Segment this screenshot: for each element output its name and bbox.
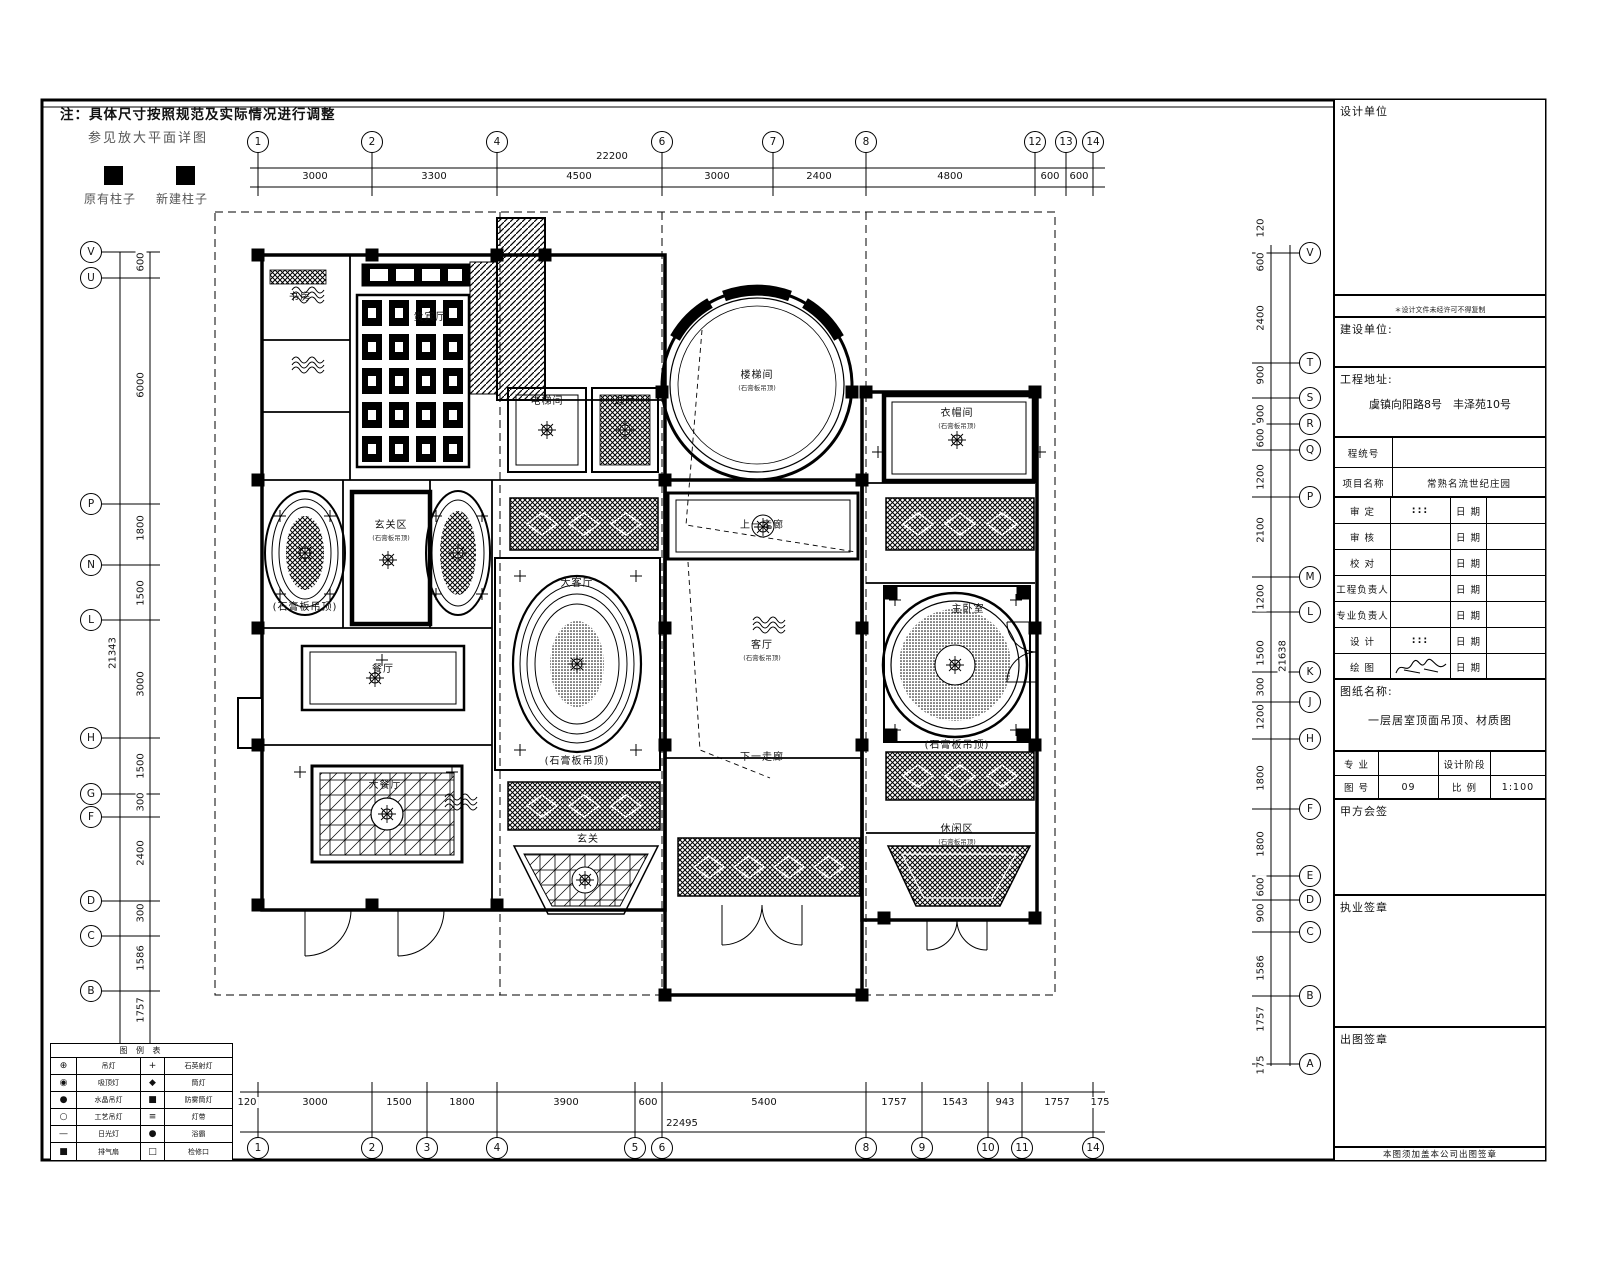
sheet-note-line1: 注：具体尺寸按照规范及实际情况进行调整	[60, 103, 336, 123]
legend-symbol: ■	[51, 1143, 77, 1160]
sheet-name-box: 图纸名称: 一层居室顶面吊顶、材质图	[1335, 680, 1545, 752]
major-label: 专 业	[1335, 752, 1379, 775]
grid-bubble: L	[1299, 601, 1321, 623]
legend-row: ○工艺吊灯≡灯带	[51, 1109, 232, 1126]
grid-bubble: 14	[1082, 1137, 1104, 1159]
dimension-label: 1800	[1256, 763, 1267, 792]
sign-value	[1391, 576, 1451, 601]
grid-bubble: A	[1299, 1053, 1321, 1075]
legend-label: 筒灯	[165, 1075, 232, 1091]
overall-dimension: 21343	[108, 635, 119, 671]
sign-role-label: 工程负责人	[1335, 576, 1391, 601]
date-value	[1487, 550, 1545, 575]
room-label: 主卧室	[952, 600, 985, 615]
grid-bubble: V	[80, 241, 102, 263]
grid-bubble: R	[1299, 413, 1321, 435]
legend-label: 排气扇	[77, 1143, 141, 1160]
date-label: 日 期	[1451, 550, 1487, 575]
room-label: 电梯间	[531, 392, 564, 407]
dimension-label: 300	[136, 790, 147, 813]
dimension-label: 600	[1038, 171, 1061, 182]
dimension-label: 300	[1256, 675, 1267, 698]
legend-symbol: +	[141, 1058, 165, 1074]
scale-value: 1:100	[1491, 776, 1545, 798]
address-value: 虞镇向阳路8号 丰泽苑10号	[1335, 396, 1545, 412]
sign-value	[1391, 550, 1451, 575]
signature-row: 审 核日 期	[1335, 524, 1545, 550]
legend-symbol: ●	[51, 1092, 77, 1108]
grid-bubble: F	[1299, 798, 1321, 820]
client-sign-box: 甲方会签	[1335, 800, 1545, 896]
sign-role-label: 审 定	[1335, 498, 1391, 523]
axis-ticks	[100, 150, 1302, 1140]
legend-label: 吊灯	[77, 1058, 141, 1074]
dimension-label: 600	[136, 250, 147, 273]
dimension-label: 1200	[1256, 462, 1267, 491]
dimension-label: 3300	[419, 171, 448, 182]
construction-unit-label: 建设单位:	[1335, 318, 1545, 340]
legend-table: 图 例 表 ⊕吊灯+石英射灯◉吸顶灯◆筒灯●水晶吊灯■防雾筒灯○工艺吊灯≡灯带—…	[50, 1043, 233, 1161]
legend-label: 检修口	[165, 1143, 232, 1160]
room-label: 楼梯间(石膏板吊顶)	[738, 366, 776, 392]
dimension-label: 900	[1256, 402, 1267, 425]
date-value	[1487, 498, 1545, 523]
grid-bubble: 1	[247, 131, 269, 153]
grid-bubble: 3	[416, 1137, 438, 1159]
ceiling-decor	[265, 264, 1034, 914]
grid-bubble: 13	[1055, 131, 1077, 153]
dimension-label: 600	[1256, 250, 1267, 273]
grid-bubble: D	[1299, 889, 1321, 911]
dimension-label: 2100	[1256, 515, 1267, 544]
legend-symbol: ⊕	[51, 1058, 77, 1074]
date-value	[1487, 602, 1545, 627]
legend-label: 吸顶灯	[77, 1075, 141, 1091]
room-label: 书房	[289, 288, 311, 303]
grid-bubble: 5	[624, 1137, 646, 1159]
sign-value: :::	[1391, 628, 1451, 653]
grid-bubble: E	[1299, 865, 1321, 887]
grid-bubble: 12	[1024, 131, 1046, 153]
grid-bubble: T	[1299, 352, 1321, 374]
room-label: (石膏板吊顶)	[545, 752, 610, 767]
dimension-label: 600	[636, 1097, 659, 1108]
grid-bubble: V	[1299, 242, 1321, 264]
room-label: 客厅(石膏板吊顶)	[743, 636, 781, 662]
legend-symbol: ○	[51, 1109, 77, 1125]
dimension-label: 1800	[136, 513, 147, 542]
room-label: 过厅	[614, 392, 636, 407]
footer-note: 本图须加盖本公司出图签章	[1335, 1148, 1545, 1162]
overall-dimension: 22200	[594, 151, 630, 162]
dimension-label: 300	[136, 901, 147, 924]
signature-table: 审 定:::日 期审 核日 期校 对日 期工程负责人日 期专业负责人日 期设 计…	[1335, 498, 1545, 680]
dimension-label: 1586	[136, 943, 147, 972]
sign-role-label: 校 对	[1335, 550, 1391, 575]
dimension-label: 1586	[1256, 953, 1267, 982]
dimension-label: 2400	[136, 838, 147, 867]
sheet-no: 09	[1379, 776, 1439, 798]
grid-bubble: B	[1299, 985, 1321, 1007]
grid-bubble: B	[80, 980, 102, 1002]
dimension-label: 600	[1256, 426, 1267, 449]
design-unit-box: 设计单位	[1335, 100, 1545, 296]
overall-dimension: 21638	[1278, 638, 1289, 674]
dimension-label: 900	[1256, 901, 1267, 924]
legend-label: 防雾筒灯	[165, 1092, 232, 1108]
room-label: 餐厅	[372, 660, 394, 675]
signature-row: 工程负责人日 期	[1335, 576, 1545, 602]
address-label: 工程地址:	[1335, 368, 1545, 390]
phase-value	[1491, 752, 1545, 775]
issue-seal-box: 出图签章	[1335, 1028, 1545, 1148]
room-label: 衣帽间(石膏板吊顶)	[938, 404, 976, 430]
sheetno-scale-row: 图 号 09 比 例 1:100	[1335, 776, 1545, 800]
dimension-label: 175	[1088, 1097, 1111, 1108]
dimension-label: 600	[1256, 875, 1267, 898]
legend-label: 日光灯	[77, 1126, 141, 1142]
dimension-label: 1500	[136, 578, 147, 607]
legend-label: 浴霸	[165, 1126, 232, 1142]
dimension-label: 1800	[447, 1097, 476, 1108]
date-label: 日 期	[1451, 524, 1487, 549]
dimension-label: 1757	[879, 1097, 908, 1108]
legend-symbol: ●	[141, 1126, 165, 1142]
dimension-label: 120	[235, 1097, 258, 1108]
cad-sheet: { "note": { "line1": "注：具体尺寸按照规范及实际情况进行调…	[0, 0, 1600, 1280]
new-column-swatch	[176, 166, 195, 185]
dimension-label: 2400	[804, 171, 833, 182]
dimension-label: 4500	[564, 171, 593, 182]
sheet-note-line2: 参见放大平面详图	[88, 127, 208, 146]
legend-row: —日光灯●浴霸	[51, 1126, 232, 1143]
room-label: 玄关	[577, 830, 599, 845]
legend-title: 图 例 表	[51, 1044, 232, 1058]
dimension-label: 6000	[136, 370, 147, 399]
grid-bubble: N	[80, 554, 102, 576]
sign-value	[1391, 654, 1451, 680]
dimension-label: 943	[993, 1097, 1016, 1108]
grid-bubble: M	[1299, 566, 1321, 588]
date-label: 日 期	[1451, 654, 1487, 680]
room-label: (石膏板吊顶)	[273, 598, 338, 613]
legend-label: 石英射灯	[165, 1058, 232, 1074]
grid-bubble: S	[1299, 387, 1321, 409]
dimension-label: 3000	[136, 669, 147, 698]
grid-bubble: 11	[1011, 1137, 1033, 1159]
construction-unit-box: 建设单位:	[1335, 318, 1545, 368]
grid-bubble: C	[80, 925, 102, 947]
room-label: (石膏板吊顶)	[925, 736, 990, 751]
grid-bubble: 1	[247, 1137, 269, 1159]
grid-bubble: 8	[855, 131, 877, 153]
grid-bubble: 4	[486, 1137, 508, 1159]
sign-role-label: 绘 图	[1335, 654, 1391, 680]
dimension-label: 1200	[1256, 582, 1267, 611]
grid-bubble: 10	[977, 1137, 999, 1159]
grid-bubble: P	[80, 493, 102, 515]
room-label: 大餐厅	[369, 776, 402, 791]
title-block: 设计单位 ＊设计文件未经许可不得复制 建设单位: 工程地址: 虞镇向阳路8号 丰…	[1333, 100, 1545, 1160]
grid-bubble: F	[80, 806, 102, 828]
dimension-label: 1757	[136, 995, 147, 1024]
date-value	[1487, 654, 1545, 680]
dimension-label: 5400	[749, 1097, 778, 1108]
legend-symbol: —	[51, 1126, 77, 1142]
dimension-label: 120	[1256, 216, 1267, 239]
address-box: 工程地址: 虞镇向阳路8号 丰泽苑10号	[1335, 368, 1545, 438]
license-seal-box: 执业签章	[1335, 896, 1545, 1028]
signature-row: 专业负责人日 期	[1335, 602, 1545, 628]
info-label: 程统号	[1335, 438, 1393, 467]
room-label: 大客厅	[561, 574, 594, 589]
dimension-label: 1500	[136, 751, 147, 780]
grid-bubble: H	[1299, 728, 1321, 750]
signature-row: 校 对日 期	[1335, 550, 1545, 576]
signature-scribble	[1394, 657, 1448, 677]
grid-bubble: K	[1299, 661, 1321, 683]
major-value	[1379, 752, 1439, 775]
dimension-label: 175	[1256, 1053, 1267, 1076]
dimension-label: 3000	[702, 171, 731, 182]
sheet-name-label: 图纸名称:	[1335, 680, 1545, 702]
grid-bubble: L	[80, 609, 102, 631]
grid-bubble: 6	[651, 131, 673, 153]
project-info-table: 程统号项目名称常熟名流世纪庄园	[1335, 438, 1545, 498]
legend-symbol: ■	[141, 1092, 165, 1108]
overall-dimension: 22495	[664, 1118, 700, 1129]
design-unit-label: 设计单位	[1335, 100, 1545, 122]
grid-bubble: G	[80, 783, 102, 805]
copyright-strip: ＊设计文件未经许可不得复制	[1335, 296, 1545, 318]
sheet-no-label: 图 号	[1335, 776, 1379, 798]
sheet-name: 一层居室顶面吊顶、材质图	[1335, 712, 1545, 728]
date-label: 日 期	[1451, 628, 1487, 653]
signature-row: 设 计:::日 期	[1335, 628, 1545, 654]
info-value: 常熟名流世纪庄园	[1393, 468, 1545, 498]
info-label: 项目名称	[1335, 468, 1393, 498]
date-label: 日 期	[1451, 576, 1487, 601]
grid-bubble: 2	[361, 131, 383, 153]
issue-seal-label: 出图签章	[1335, 1028, 1545, 1050]
info-row: 项目名称常熟名流世纪庄园	[1335, 468, 1545, 498]
dimension-label: 3900	[551, 1097, 580, 1108]
signature-row: 审 定:::日 期	[1335, 498, 1545, 524]
legend-symbol: □	[141, 1143, 165, 1160]
legend-label: 水晶吊灯	[77, 1092, 141, 1108]
info-value	[1393, 438, 1545, 467]
client-sign-label: 甲方会签	[1335, 800, 1545, 822]
room-label: 玄关区(石膏板吊顶)	[372, 516, 410, 542]
legend-label: 工艺吊灯	[77, 1109, 141, 1125]
legend-row: ●水晶吊灯■防雾筒灯	[51, 1092, 232, 1109]
date-value	[1487, 576, 1545, 601]
sign-value	[1391, 602, 1451, 627]
dimension-label: 1800	[1256, 829, 1267, 858]
dimension-label: 1500	[384, 1097, 413, 1108]
grid-bubble: 14	[1082, 131, 1104, 153]
copyright-note: ＊设计文件未经许可不得复制	[1395, 306, 1486, 314]
sign-role-label: 审 核	[1335, 524, 1391, 549]
grid-bubble: U	[80, 267, 102, 289]
dimension-label: 1200	[1256, 702, 1267, 731]
dimension-label: 900	[1256, 363, 1267, 386]
grid-bubble: 2	[361, 1137, 383, 1159]
dimension-label: 1757	[1042, 1097, 1071, 1108]
grid-bubble: 6	[651, 1137, 673, 1159]
phase-label: 设计阶段	[1439, 752, 1491, 775]
info-row: 程统号	[1335, 438, 1545, 468]
grid-bubble: J	[1299, 691, 1321, 713]
grid-bubble: Q	[1299, 439, 1321, 461]
legend-row: ⊕吊灯+石英射灯	[51, 1058, 232, 1075]
grid-bubble: C	[1299, 921, 1321, 943]
grid-bubble: 9	[911, 1137, 933, 1159]
dimension-label: 1543	[940, 1097, 969, 1108]
grid-bubble: 4	[486, 131, 508, 153]
sign-role-label: 专业负责人	[1335, 602, 1391, 627]
date-label: 日 期	[1451, 498, 1487, 523]
grid-bubble: 8	[855, 1137, 877, 1159]
dimension-label: 3000	[300, 1097, 329, 1108]
date-label: 日 期	[1451, 602, 1487, 627]
room-label: 贵宾厅	[414, 308, 447, 323]
sign-value: :::	[1391, 498, 1451, 523]
scale-label: 比 例	[1439, 776, 1491, 798]
dimension-label: 1500	[1256, 638, 1267, 667]
existing-column-swatch	[104, 166, 123, 185]
major-phase-row: 专 业 设计阶段	[1335, 752, 1545, 776]
dimension-label: 1757	[1256, 1004, 1267, 1033]
legend-row: ◉吸顶灯◆筒灯	[51, 1075, 232, 1092]
dimension-label: 3000	[300, 171, 329, 182]
legend-symbol: ◉	[51, 1075, 77, 1091]
room-label: 下一走廊	[740, 748, 784, 763]
date-value	[1487, 628, 1545, 653]
dimension-label: 2400	[1256, 303, 1267, 332]
dimension-label: 600	[1067, 171, 1090, 182]
legend-symbol: ≡	[141, 1109, 165, 1125]
grid-bubble: D	[80, 890, 102, 912]
sign-value	[1391, 524, 1451, 549]
signature-row: 绘 图日 期	[1335, 654, 1545, 680]
dimension-label: 4800	[935, 171, 964, 182]
room-label: 上一走廊	[740, 516, 784, 531]
grid-bubble: P	[1299, 486, 1321, 508]
sign-role-label: 设 计	[1335, 628, 1391, 653]
room-label: 休闲区(石膏板吊顶)	[938, 820, 976, 846]
new-column-label: 新建柱子	[156, 190, 208, 207]
license-seal-label: 执业签章	[1335, 896, 1545, 918]
legend-row: ■排气扇□检修口	[51, 1143, 232, 1160]
grid-bubble: H	[80, 727, 102, 749]
date-value	[1487, 524, 1545, 549]
existing-column-label: 原有柱子	[84, 190, 136, 207]
legend-symbol: ◆	[141, 1075, 165, 1091]
grid-bubble: 7	[762, 131, 784, 153]
legend-label: 灯带	[165, 1109, 232, 1125]
